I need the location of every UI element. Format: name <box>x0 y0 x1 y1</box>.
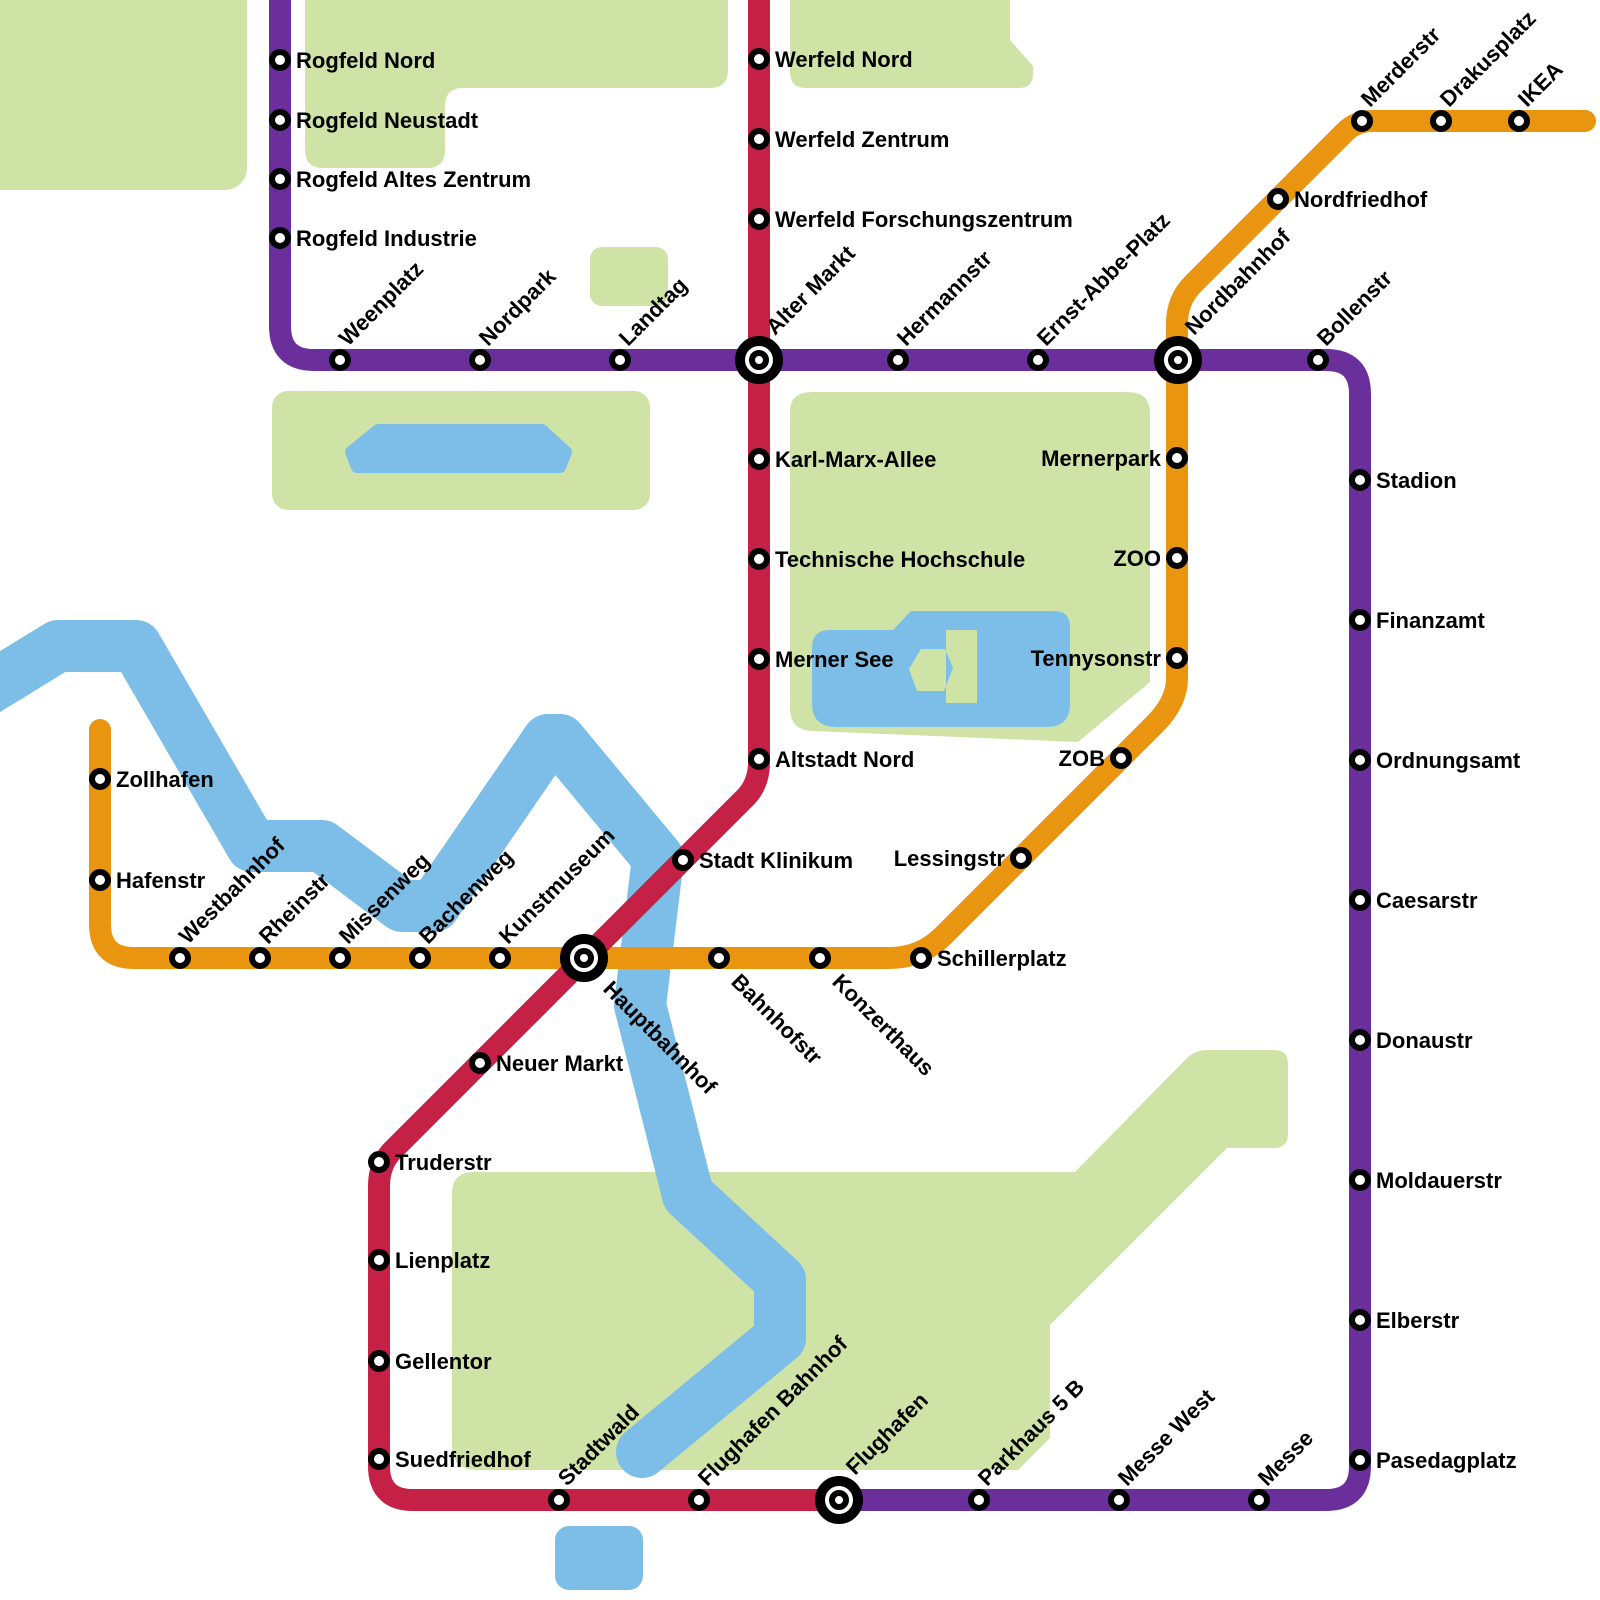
station-marker-icon <box>612 352 628 368</box>
station-marker-icon <box>751 51 767 67</box>
station-marker-icon <box>332 352 348 368</box>
station-label: Neuer Markt <box>496 1051 624 1076</box>
station-label: ZOO <box>1113 546 1161 571</box>
metro-map-stage: Rogfeld NordRogfeld NeustadtRogfeld Alte… <box>0 0 1600 1600</box>
station-label: Nordfriedhof <box>1294 187 1428 212</box>
station-marker-icon <box>472 352 488 368</box>
station-marker-icon <box>711 950 727 966</box>
station-schillerplatz: Schillerplatz <box>913 946 1067 971</box>
metro-network-map: Rogfeld NordRogfeld NeustadtRogfeld Alte… <box>0 0 1600 1600</box>
station-marker-icon <box>1352 1172 1368 1188</box>
station-ordnungsamt: Ordnungsamt <box>1352 748 1521 773</box>
station-label: Donaustr <box>1376 1028 1473 1053</box>
station-marker-icon <box>172 950 188 966</box>
station-label: Werfeld Nord <box>775 47 913 72</box>
station-marker-icon <box>913 950 929 966</box>
station-marker-icon <box>751 131 767 147</box>
station-marker-icon <box>272 171 288 187</box>
station-marker-icon <box>1352 472 1368 488</box>
station-label: Rogfeld Altes Zentrum <box>296 167 531 192</box>
station-marker-icon <box>1433 113 1449 129</box>
interchange-marker-inner-icon <box>577 951 591 965</box>
station-label: Rogfeld Industrie <box>296 226 477 251</box>
west-lake <box>351 430 566 467</box>
station-marker-icon <box>1352 1452 1368 1468</box>
station-marker-icon <box>1169 650 1185 666</box>
station-marker-icon <box>272 112 288 128</box>
interchange-marker-inner-icon <box>1171 353 1185 367</box>
station-marker-icon <box>412 950 428 966</box>
station-marker-icon <box>252 950 268 966</box>
station-marker-icon <box>1111 1492 1127 1508</box>
station-pasedagplatz: Pasedagplatz <box>1352 1448 1517 1473</box>
station-label: Hafenstr <box>116 868 206 893</box>
station-suedfriedhof: Suedfriedhof <box>371 1447 531 1472</box>
station-label: Elberstr <box>1376 1308 1460 1333</box>
station-label: Moldauerstr <box>1376 1168 1502 1193</box>
station-label: Lienplatz <box>395 1248 490 1273</box>
station-marker-icon <box>371 1154 387 1170</box>
station-technische-hochschule: Technische Hochschule <box>751 547 1025 572</box>
station-zob: ZOB <box>1059 746 1129 771</box>
station-rogfeld-neustadt: Rogfeld Neustadt <box>272 108 479 133</box>
station-marker-icon <box>92 872 108 888</box>
station-marker-icon <box>1352 752 1368 768</box>
station-rogfeld-altes-zentrum: Rogfeld Altes Zentrum <box>272 167 531 192</box>
station-rogfeld-industrie: Rogfeld Industrie <box>272 226 477 251</box>
station-marker-icon <box>1352 1312 1368 1328</box>
station-marker-icon <box>751 211 767 227</box>
station-marker-icon <box>472 1055 488 1071</box>
station-label: Schillerplatz <box>937 946 1067 971</box>
station-marker-icon <box>1030 352 1046 368</box>
station-marker-icon <box>890 352 906 368</box>
station-marker-icon <box>332 950 348 966</box>
station-marker-icon <box>1352 1032 1368 1048</box>
station-nordfriedhof: Nordfriedhof <box>1270 187 1428 212</box>
station-marker-icon <box>751 451 767 467</box>
station-label: Pasedagplatz <box>1376 1448 1517 1473</box>
station-marker-icon <box>1511 113 1527 129</box>
station-karl-marx-allee: Karl-Marx-Allee <box>751 447 936 472</box>
station-marker-icon <box>1270 191 1286 207</box>
station-marker-icon <box>812 950 828 966</box>
station-marker-icon <box>751 551 767 567</box>
station-marker-icon <box>1352 892 1368 908</box>
interchange-marker-inner-icon <box>752 353 766 367</box>
station-marker-icon <box>691 1492 707 1508</box>
station-label: Truderstr <box>395 1150 492 1175</box>
station-marker-icon <box>1169 550 1185 566</box>
station-label: Werfeld Forschungszentrum <box>775 207 1073 232</box>
station-stadt-klinikum: Stadt Klinikum <box>675 848 853 873</box>
station-werfeld-forschungszentrum: Werfeld Forschungszentrum <box>751 207 1073 232</box>
station-label: Technische Hochschule <box>775 547 1025 572</box>
station-rogfeld-nord: Rogfeld Nord <box>272 48 435 73</box>
station-label: Gellentor <box>395 1349 492 1374</box>
station-label: Tennysonstr <box>1031 646 1162 671</box>
station-label: Lessingstr <box>894 846 1006 871</box>
station-marker-icon <box>492 950 508 966</box>
station-marker-icon <box>551 1492 567 1508</box>
station-marker-icon <box>1354 113 1370 129</box>
station-marker-icon <box>971 1492 987 1508</box>
station-label: Ordnungsamt <box>1376 748 1521 773</box>
station-werfeld-nord: Werfeld Nord <box>751 47 913 72</box>
station-label: Finanzamt <box>1376 608 1485 633</box>
station-marker-icon <box>371 1252 387 1268</box>
station-marker-icon <box>272 52 288 68</box>
station-marker-icon <box>1251 1492 1267 1508</box>
station-marker-icon <box>272 230 288 246</box>
station-label: ZOB <box>1059 746 1105 771</box>
station-marker-icon <box>751 651 767 667</box>
station-zoo: ZOO <box>1113 546 1185 571</box>
station-marker-icon <box>92 771 108 787</box>
station-marker-icon <box>751 751 767 767</box>
station-marker-icon <box>1113 750 1129 766</box>
interchange-marker-inner-icon <box>832 1493 846 1507</box>
station-label: Werfeld Zentrum <box>775 127 949 152</box>
station-marker-icon <box>1310 352 1326 368</box>
station-marker-icon <box>675 852 691 868</box>
station-label: Stadt Klinikum <box>699 848 853 873</box>
station-label: Karl-Marx-Allee <box>775 447 936 472</box>
station-label: Rogfeld Nord <box>296 48 435 73</box>
station-marker-icon <box>371 1451 387 1467</box>
park-northwest <box>0 0 247 190</box>
station-label: Merner See <box>775 647 894 672</box>
park-north-right <box>790 0 1033 88</box>
station-altstadt-nord: Altstadt Nord <box>751 747 914 772</box>
station-label: Caesarstr <box>1376 888 1478 913</box>
station-werfeld-zentrum: Werfeld Zentrum <box>751 127 949 152</box>
south-pond <box>555 1526 643 1590</box>
station-label: Zollhafen <box>116 767 214 792</box>
station-label: Stadion <box>1376 468 1457 493</box>
station-marker-icon <box>1352 612 1368 628</box>
station-label: Rogfeld Neustadt <box>296 108 479 133</box>
station-label: Altstadt Nord <box>775 747 914 772</box>
station-label: Mernerpark <box>1041 446 1162 471</box>
station-marker-icon <box>1013 850 1029 866</box>
station-marker-icon <box>371 1353 387 1369</box>
station-marker-icon <box>1169 450 1185 466</box>
station-label: Suedfriedhof <box>395 1447 531 1472</box>
